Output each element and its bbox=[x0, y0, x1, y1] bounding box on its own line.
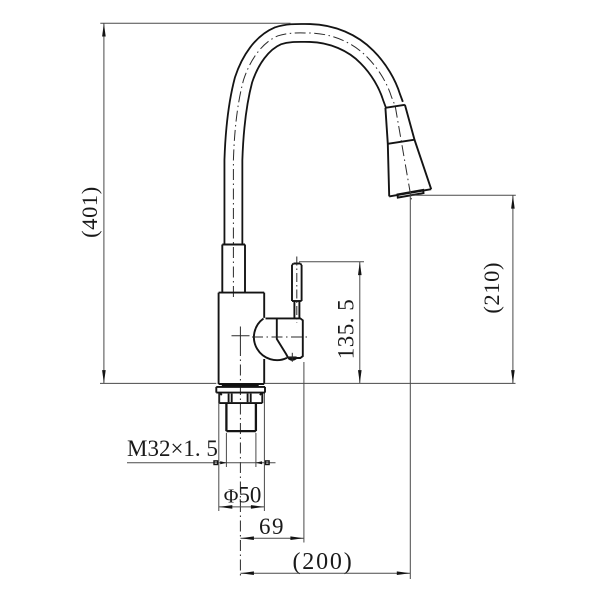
svg-text:(401): (401) bbox=[77, 186, 102, 238]
svg-text:Φ50: Φ50 bbox=[224, 482, 262, 507]
svg-text:M32×1. 5: M32×1. 5 bbox=[127, 436, 218, 461]
svg-text:(200): (200) bbox=[293, 549, 354, 575]
svg-text:135. 5: 135. 5 bbox=[334, 299, 359, 360]
svg-text:(210): (210) bbox=[479, 262, 504, 314]
svg-text:69: 69 bbox=[259, 514, 285, 539]
